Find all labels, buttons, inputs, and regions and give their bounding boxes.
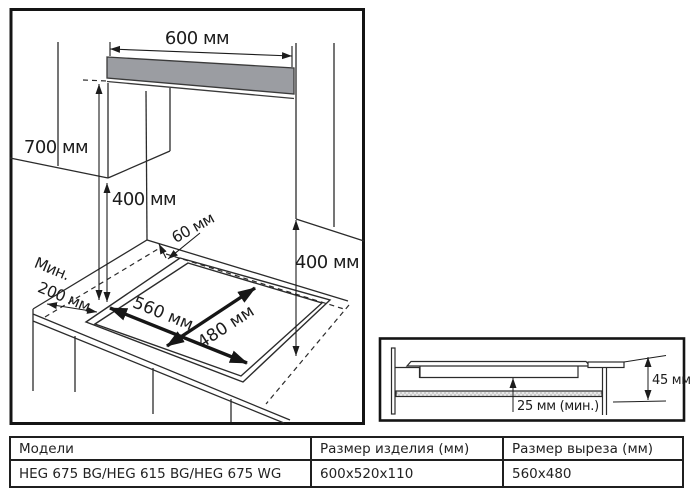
dim-label-45: 45 мм — [652, 373, 691, 388]
header-cutout-size: Размер выреза (мм) — [503, 437, 683, 460]
installation-page: 600 мм 700 мм 400 мм 400 мм 60 мм Мин. 2… — [0, 0, 700, 497]
dim-label-700: 700 мм — [24, 137, 88, 158]
spec-table: Модели Размер изделия (мм) Размер выреза… — [9, 436, 684, 488]
room-corner-line — [146, 91, 147, 240]
dim-label-600: 600 мм — [165, 28, 229, 49]
edge-trim-flange — [588, 362, 624, 368]
dim-label-min: Мин. — [32, 254, 73, 284]
cooker-hood — [107, 57, 294, 99]
header-product-size: Размер изделия (мм) — [311, 437, 503, 460]
dim-label-400-left: 400 мм — [112, 189, 176, 210]
table-row: HEG 675 BG/HEG 615 BG/HEG 675 WG 600x520… — [10, 460, 683, 487]
dim-label-200: 200 мм — [35, 278, 93, 315]
cell-cutout-size: 560x480 — [503, 460, 683, 487]
hob-glass — [407, 362, 590, 367]
worktop-left-section — [395, 368, 420, 379]
table-header-row: Модели Размер изделия (мм) Размер выреза… — [10, 437, 683, 460]
header-models: Модели — [10, 437, 311, 460]
side-wall — [392, 348, 396, 414]
edge-trim-stem — [603, 368, 607, 416]
hidden-edges-dashed — [45, 80, 349, 404]
dim-label-25: 25 мм (мин.) — [517, 399, 599, 414]
dim-label-400-right: 400 мм — [295, 252, 359, 273]
cell-models: HEG 675 BG/HEG 615 BG/HEG 675 WG — [10, 460, 311, 487]
cell-product-size: 600x520x110 — [311, 460, 503, 487]
section-diagram: 45 мм 25 мм (мин.) — [375, 332, 700, 427]
dim-label-60: 60 мм — [169, 209, 218, 247]
hob-tub — [420, 366, 578, 378]
installation-diagram: 600 мм 700 мм 400 мм 400 мм 60 мм Мин. 2… — [0, 0, 375, 430]
right-cabinet — [296, 43, 364, 241]
lower-shelf — [396, 391, 602, 397]
